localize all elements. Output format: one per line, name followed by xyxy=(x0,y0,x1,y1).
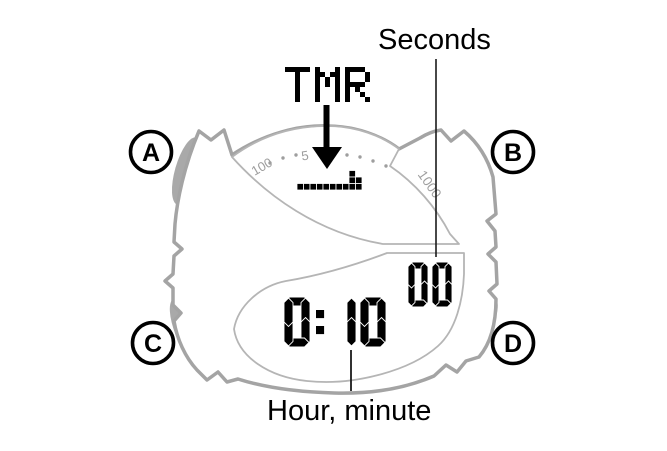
button-d-callout[interactable]: D xyxy=(493,323,534,364)
watch-diagram: 100 5 1000 xyxy=(0,0,667,451)
button-b-letter: B xyxy=(504,139,522,167)
hour-minute-label: Hour, minute xyxy=(267,397,431,426)
mode-indicator-text xyxy=(285,67,370,102)
button-c-callout[interactable]: C xyxy=(133,323,174,364)
seconds-label: Seconds xyxy=(378,26,491,55)
button-b-callout[interactable]: B xyxy=(493,132,534,173)
button-a-letter: A xyxy=(142,139,160,167)
button-d-letter: D xyxy=(504,330,522,358)
button-a-callout[interactable]: A xyxy=(131,132,172,173)
manual-diagram-page: 100 5 1000 xyxy=(0,0,667,451)
button-c-letter: C xyxy=(144,330,162,358)
